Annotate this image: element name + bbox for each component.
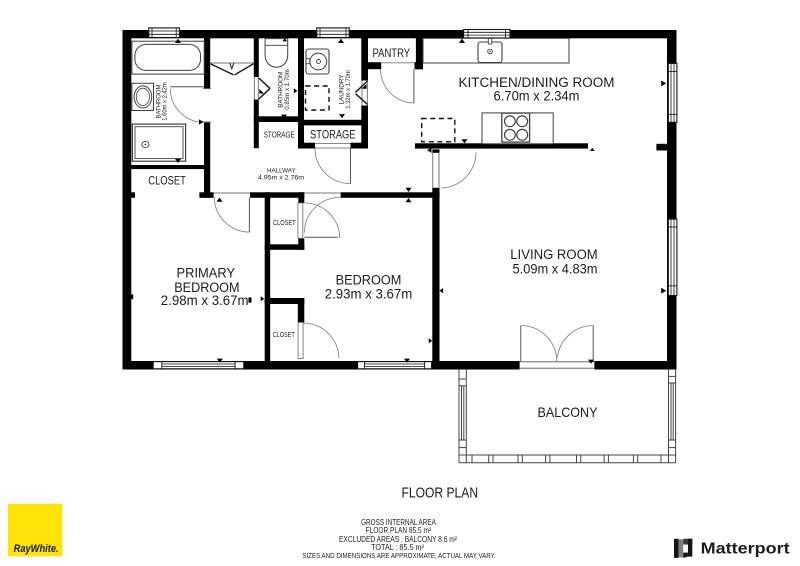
svg-text:1.60m x 2.42m: 1.60m x 2.42m (162, 82, 169, 121)
svg-text:RayWhite.: RayWhite. (14, 543, 59, 555)
svg-text:2.93m x 3.67m: 2.93m x 3.67m (325, 286, 413, 301)
svg-text:6.70m x 2.34m: 6.70m x 2.34m (494, 89, 580, 104)
svg-text:CLOSET: CLOSET (148, 175, 186, 188)
svg-text:Matterport: Matterport (701, 540, 790, 557)
svg-text:CLOSET: CLOSET (273, 220, 296, 227)
svg-text:HALLWAY: HALLWAY (267, 167, 296, 174)
svg-text:STORAGE: STORAGE (310, 127, 356, 141)
svg-text:0.85m x 1.70m: 0.85m x 1.70m (284, 69, 291, 110)
svg-text:5.09m x 4.83m: 5.09m x 4.83m (513, 262, 598, 277)
svg-text:LIVING ROOM: LIVING ROOM (510, 247, 598, 263)
svg-text:FLOOR PLAN: FLOOR PLAN (402, 484, 479, 501)
svg-text:BALCONY: BALCONY (538, 404, 599, 420)
svg-text:1.32m x 1.70m: 1.32m x 1.70m (345, 70, 352, 109)
svg-text:PANTRY: PANTRY (373, 46, 411, 60)
svg-text:SIZES AND DIMENSIONS ARE APPRO: SIZES AND DIMENSIONS ARE APPROXIMATE, AC… (302, 551, 495, 560)
svg-text:2.98m x 3.67m: 2.98m x 3.67m (161, 293, 249, 308)
svg-text:4.95m x 2.76m: 4.95m x 2.76m (258, 175, 304, 182)
svg-text:STORAGE: STORAGE (264, 130, 295, 139)
svg-text:FLOOR PLAN 85.5 m²: FLOOR PLAN 85.5 m² (366, 526, 432, 535)
svg-text:CLOSET: CLOSET (273, 332, 296, 339)
